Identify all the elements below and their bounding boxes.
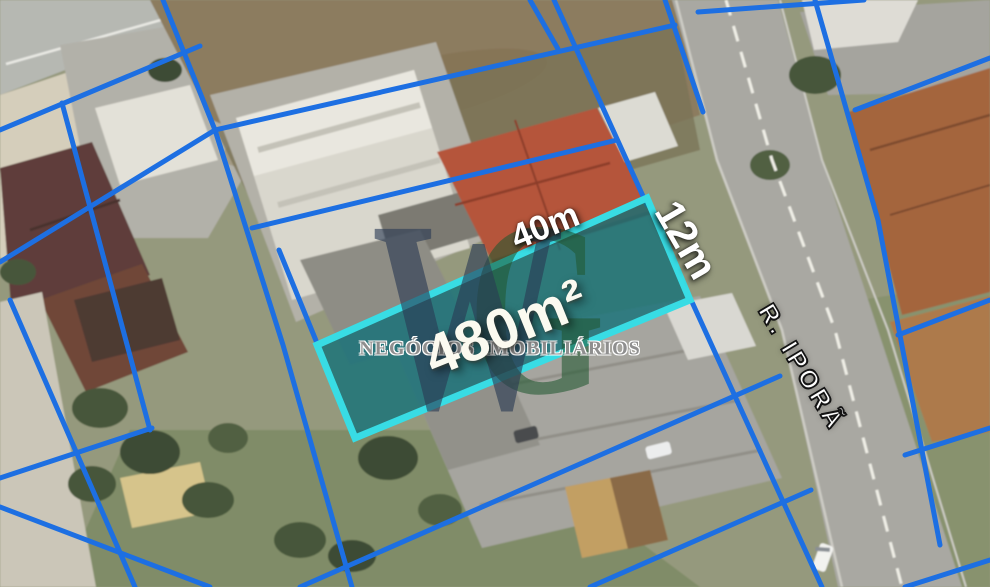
aerial-map-canvas [0, 0, 990, 587]
tree [182, 482, 234, 518]
tree [358, 436, 418, 480]
tree [0, 259, 36, 285]
aerial-photo[interactable]: G W NEGÓCIOS IMOBILIÁRIOS 40m 480m² 12m … [0, 0, 990, 587]
tree [208, 423, 248, 453]
tree [274, 522, 326, 558]
tree [750, 150, 790, 180]
tree [72, 388, 128, 428]
